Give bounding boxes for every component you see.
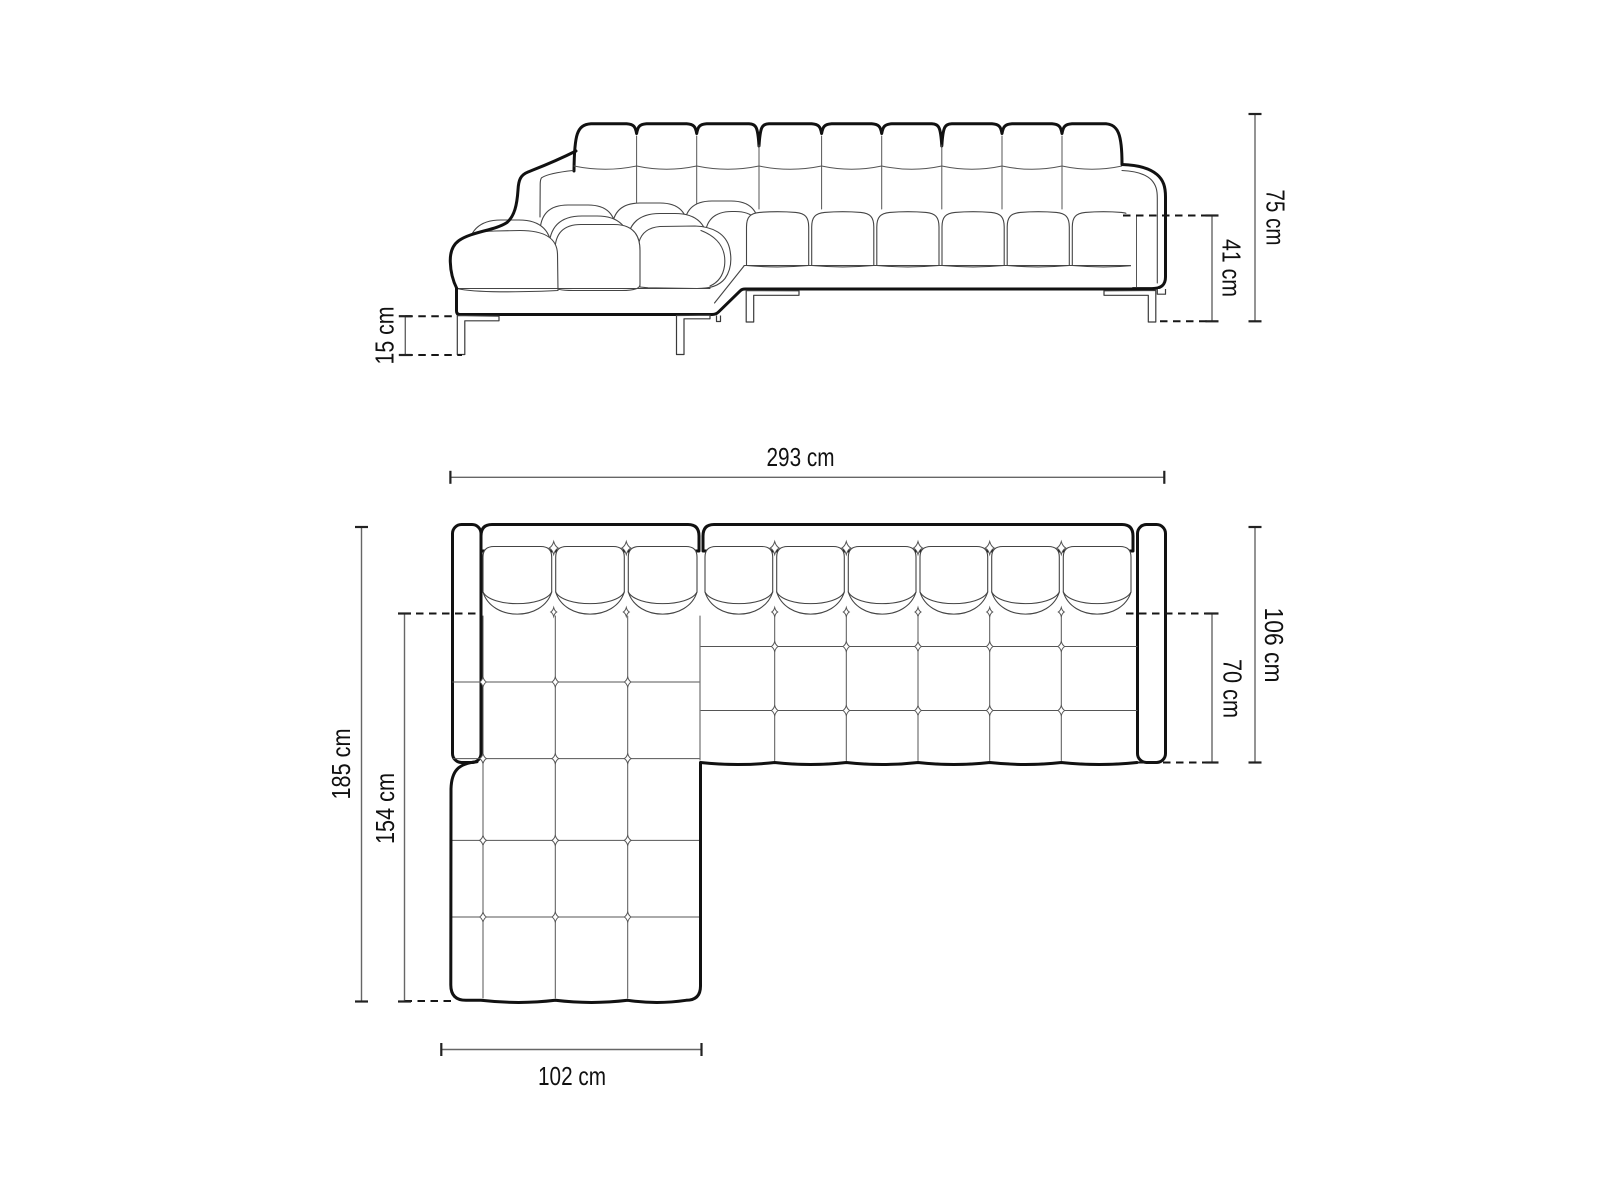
svg-text:102 cm: 102 cm [538,1061,606,1091]
svg-text:185 cm: 185 cm [326,729,356,800]
svg-text:293 cm: 293 cm [767,442,835,472]
svg-text:41 cm: 41 cm [1217,239,1247,297]
svg-text:154 cm: 154 cm [370,773,400,844]
svg-text:75 cm: 75 cm [1261,190,1291,246]
svg-text:70 cm: 70 cm [1218,659,1248,718]
svg-text:15 cm: 15 cm [370,307,400,365]
svg-text:106 cm: 106 cm [1259,608,1289,683]
